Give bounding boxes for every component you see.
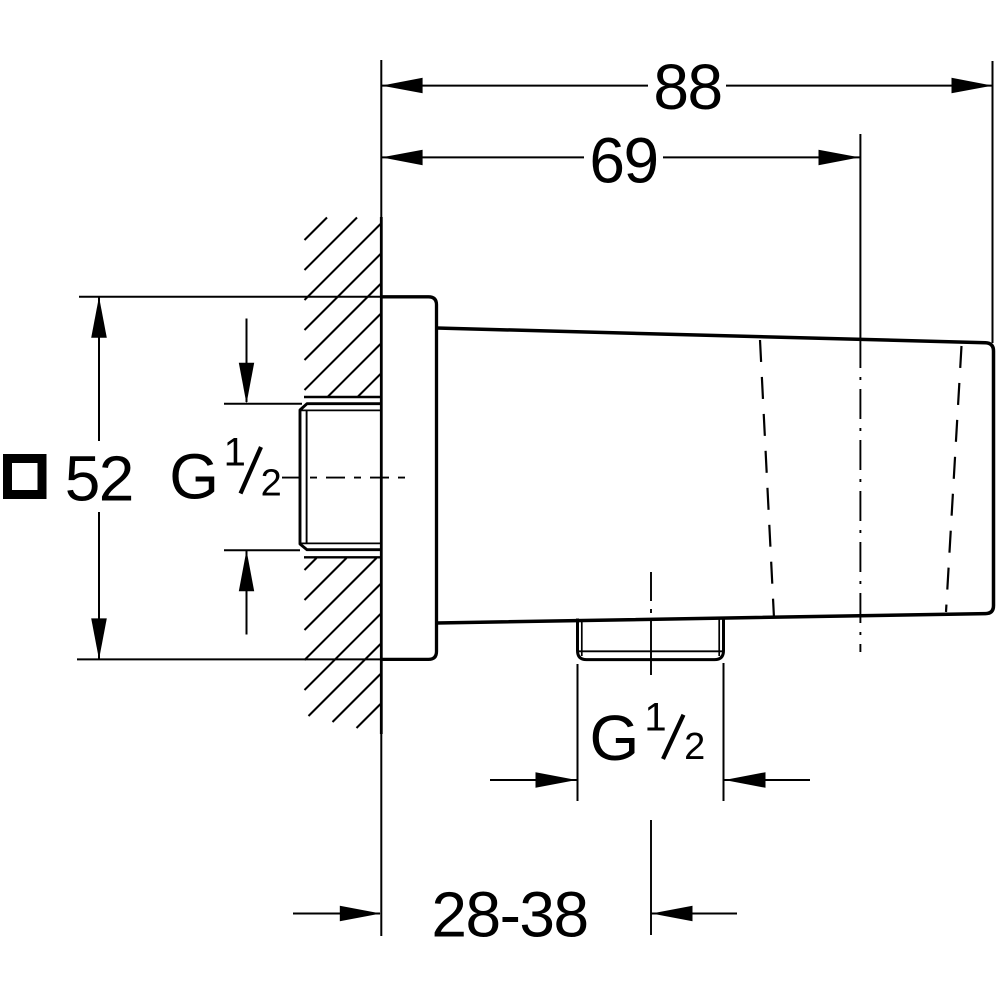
svg-text:1: 1 [644, 696, 666, 740]
svg-text:2: 2 [261, 463, 282, 505]
svg-text:G: G [169, 441, 219, 513]
svg-text:G: G [590, 702, 640, 774]
svg-text:69: 69 [589, 125, 657, 197]
svg-text:2: 2 [684, 726, 705, 768]
svg-text:88: 88 [653, 51, 721, 123]
svg-text:28-38: 28-38 [431, 879, 587, 951]
svg-text:1: 1 [224, 431, 246, 475]
svg-text:52: 52 [65, 443, 133, 515]
